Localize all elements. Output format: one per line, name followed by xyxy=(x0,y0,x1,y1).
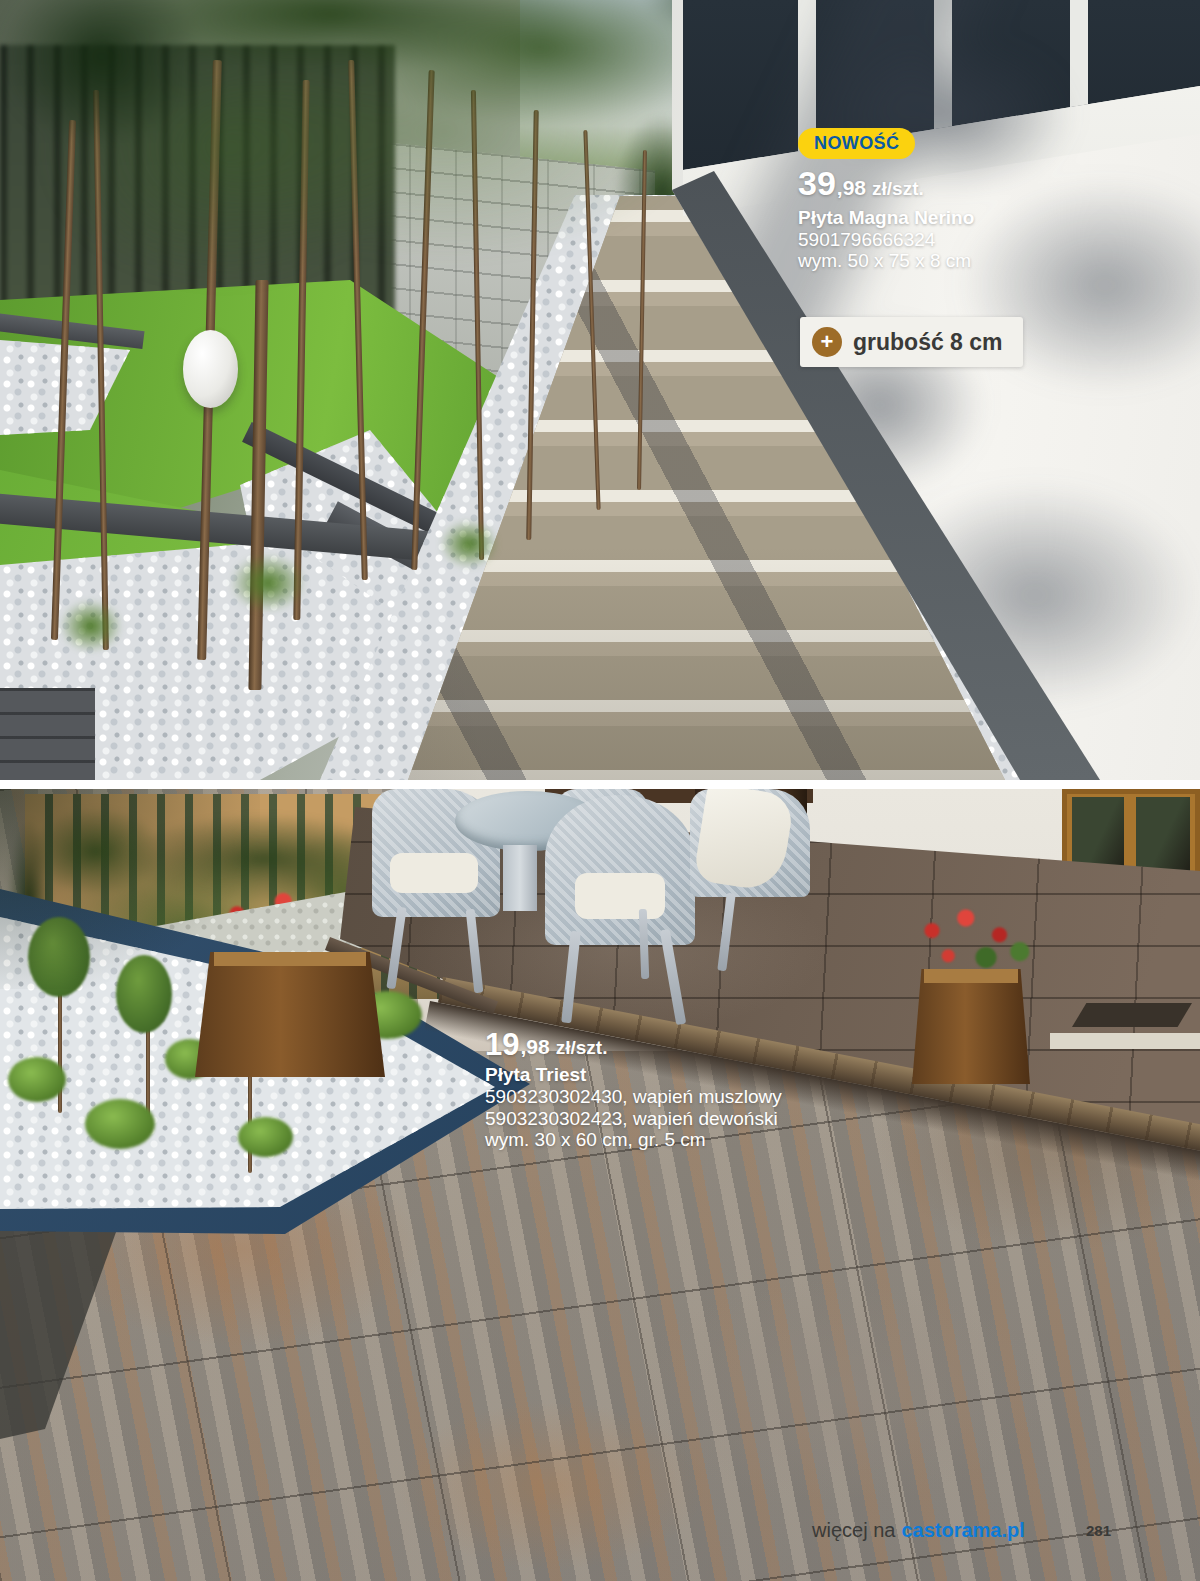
door-step xyxy=(1050,1033,1200,1049)
product-name: Płyta Triest xyxy=(485,1064,905,1086)
product-variant: 5903230302423, wapień dewoński xyxy=(485,1108,905,1130)
footer-text: więcej na xyxy=(812,1519,895,1542)
product-info-magna-nerino: NOWOŚĆ 39 ,98 zł/szt. Płyta Magna Nerino… xyxy=(798,128,1138,272)
new-badge: NOWOŚĆ xyxy=(798,128,915,159)
product-name: Płyta Magna Nerino xyxy=(798,207,1138,229)
chair-cushion xyxy=(575,873,665,919)
footer-link-castorama[interactable]: castorama.pl xyxy=(901,1519,1024,1542)
tree-trunk xyxy=(248,1061,252,1173)
price-main: 39 xyxy=(798,170,836,198)
price-main: 19 xyxy=(485,1032,519,1057)
curb-blocks xyxy=(0,688,95,780)
catalog-page: NOWOŚĆ 39 ,98 zł/szt. Płyta Magna Nerino… xyxy=(0,0,1200,1581)
price-decimal: ,98 xyxy=(520,1036,549,1057)
shrub xyxy=(85,1099,155,1149)
price-decimal: ,98 xyxy=(837,177,866,198)
product-photo-magna-nerino: NOWOŚĆ 39 ,98 zł/szt. Płyta Magna Nerino… xyxy=(0,0,1200,780)
price: 39 ,98 zł/szt. xyxy=(798,170,1138,198)
plant-tuft xyxy=(58,598,124,654)
product-dimensions: wym. 50 x 75 x 8 cm xyxy=(798,250,1138,272)
footer: więcej na castorama.pl xyxy=(812,1519,1025,1542)
product-photo-triest: 19 ,98 zł/szt. Płyta Triest 590323030243… xyxy=(0,789,1200,1581)
product-info-triest: 19 ,98 zł/szt. Płyta Triest 590323030243… xyxy=(485,1032,905,1151)
chair-cushion xyxy=(390,853,478,893)
page-number: 281 xyxy=(1086,1522,1111,1539)
product-variant: 5903230302430, wapień muszlowy xyxy=(485,1086,905,1108)
feature-badge: + grubość 8 cm xyxy=(800,317,1023,367)
price: 19 ,98 zł/szt. xyxy=(485,1032,905,1057)
wooden-planter xyxy=(912,969,1030,1084)
plant-tuft xyxy=(228,552,308,614)
wicker-chair xyxy=(545,795,695,945)
product-ean: 5901796666324 xyxy=(798,229,1138,251)
sphere-lamp xyxy=(183,330,238,408)
shrub xyxy=(8,1057,66,1102)
corner-shadow xyxy=(0,789,260,989)
plus-icon: + xyxy=(812,327,842,357)
price-unit: zł/szt. xyxy=(872,179,924,198)
red-flowers xyxy=(905,897,1040,981)
price-unit: zł/szt. xyxy=(556,1038,608,1057)
table-pedestal xyxy=(503,845,537,911)
product-dimensions: wym. 30 x 60 cm, gr. 5 cm xyxy=(485,1129,905,1151)
plant-tuft xyxy=(438,518,500,570)
shrub xyxy=(238,1117,293,1157)
feature-label: grubość 8 cm xyxy=(853,329,1003,356)
doormat xyxy=(1072,1003,1192,1027)
